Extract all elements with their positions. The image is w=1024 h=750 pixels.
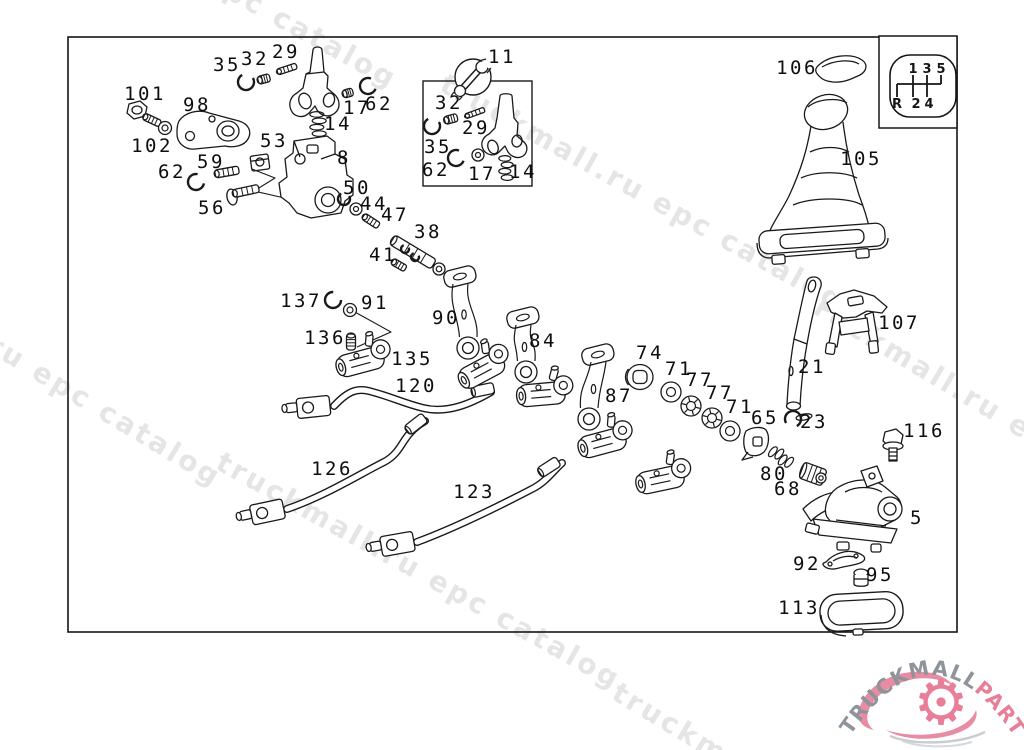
- part-label: 92: [793, 553, 821, 575]
- plate-65: [742, 427, 768, 460]
- part-label: 65: [751, 407, 779, 429]
- part-label: 23: [800, 411, 828, 433]
- shift-pattern-digit: 4: [924, 97, 933, 112]
- shift-pattern-digit: R: [892, 97, 902, 112]
- part-label: 35: [424, 136, 452, 158]
- part-label: 116: [903, 420, 945, 442]
- part-label: 105: [840, 148, 882, 170]
- part-label: 71: [726, 396, 754, 418]
- part-label: 126: [311, 458, 353, 480]
- part-label: 62: [158, 161, 186, 183]
- shift-pattern-digit: 3: [922, 62, 931, 77]
- part-label: 87: [605, 385, 633, 407]
- part-label: 59: [197, 151, 225, 173]
- cylinder-part: [231, 184, 259, 197]
- part-label: 98: [183, 94, 211, 116]
- gear-boot-105: [757, 89, 888, 264]
- part-label: 11: [488, 46, 516, 68]
- part-label: 106: [776, 57, 818, 79]
- cylinder-part: [256, 74, 271, 85]
- part-label: 21: [798, 356, 826, 378]
- part-label: 107: [878, 312, 920, 334]
- part-label: 101: [124, 83, 166, 105]
- part-label: 29: [272, 41, 300, 63]
- bracket-plate-98: [177, 111, 250, 149]
- shift-pattern-digit: 5: [936, 62, 945, 77]
- line-art-layer: [127, 47, 904, 636]
- part-label: 38: [414, 221, 442, 243]
- part-label: 90: [432, 307, 460, 329]
- cylinder-part: [347, 333, 356, 350]
- part-label: 136: [304, 327, 346, 349]
- part-label: 17: [468, 163, 496, 185]
- lever-tube-21: [787, 277, 822, 410]
- clamp-connector: [631, 447, 695, 496]
- part-label: 84: [529, 330, 557, 352]
- exploded-parts-diagram: pc catalogtruckmall.ru epc catalogtruckm…: [0, 0, 1024, 750]
- shift-pattern-digit: 1: [908, 62, 917, 77]
- part-label: 53: [260, 130, 288, 152]
- cylinder-part: [361, 213, 381, 229]
- part-label: 62: [365, 93, 393, 115]
- part-label: 91: [361, 292, 389, 314]
- gasket-92: [823, 551, 865, 569]
- part-label: 56: [198, 197, 226, 219]
- clamp-block-53: [250, 154, 270, 171]
- part-label: 29: [462, 117, 490, 139]
- rod-clevis: [235, 499, 286, 529]
- knob-cap-106: [816, 56, 866, 82]
- part-label: 41: [369, 244, 397, 266]
- part-label: 120: [395, 375, 437, 397]
- part-label: 62: [422, 159, 450, 181]
- part-label: 8: [337, 147, 351, 169]
- watermark-text: truckmall.ru epc catalog: [211, 445, 627, 696]
- part-label: 135: [391, 348, 433, 370]
- part-label: 137: [280, 290, 322, 312]
- seal-ring-113: [819, 591, 904, 636]
- part-label: 32: [435, 92, 463, 114]
- watermark-text: truckmall: [606, 676, 774, 750]
- cylinder-part: [443, 113, 459, 124]
- part-label: 35: [213, 54, 241, 76]
- part-label: 74: [636, 342, 664, 364]
- rod-clevis: [281, 395, 331, 420]
- bolt-116: [883, 429, 903, 461]
- part-label: 32: [241, 48, 269, 70]
- part-label: 68: [774, 478, 802, 500]
- catalog-page: pc catalogtruckmall.ru epc catalogtruckm…: [0, 0, 1024, 750]
- shift-pattern-digit: 2: [911, 97, 920, 112]
- part-label: 5: [910, 507, 924, 529]
- part-label: 47: [381, 204, 409, 226]
- clamp-connector: [447, 332, 515, 392]
- shift-pattern-box: 135R24: [879, 36, 957, 128]
- watermark-text: truckmall.ru epc catalog: [0, 230, 228, 494]
- part-label: 14: [509, 161, 537, 183]
- cylinder-part: [276, 63, 298, 75]
- part-label: 113: [778, 597, 820, 619]
- watermark-text: truckmall.ru epc catalog: [435, 67, 851, 318]
- part-label: 95: [866, 564, 894, 586]
- part-label: 102: [131, 135, 173, 157]
- part-label: 123: [453, 481, 495, 503]
- part-label: 14: [324, 113, 352, 135]
